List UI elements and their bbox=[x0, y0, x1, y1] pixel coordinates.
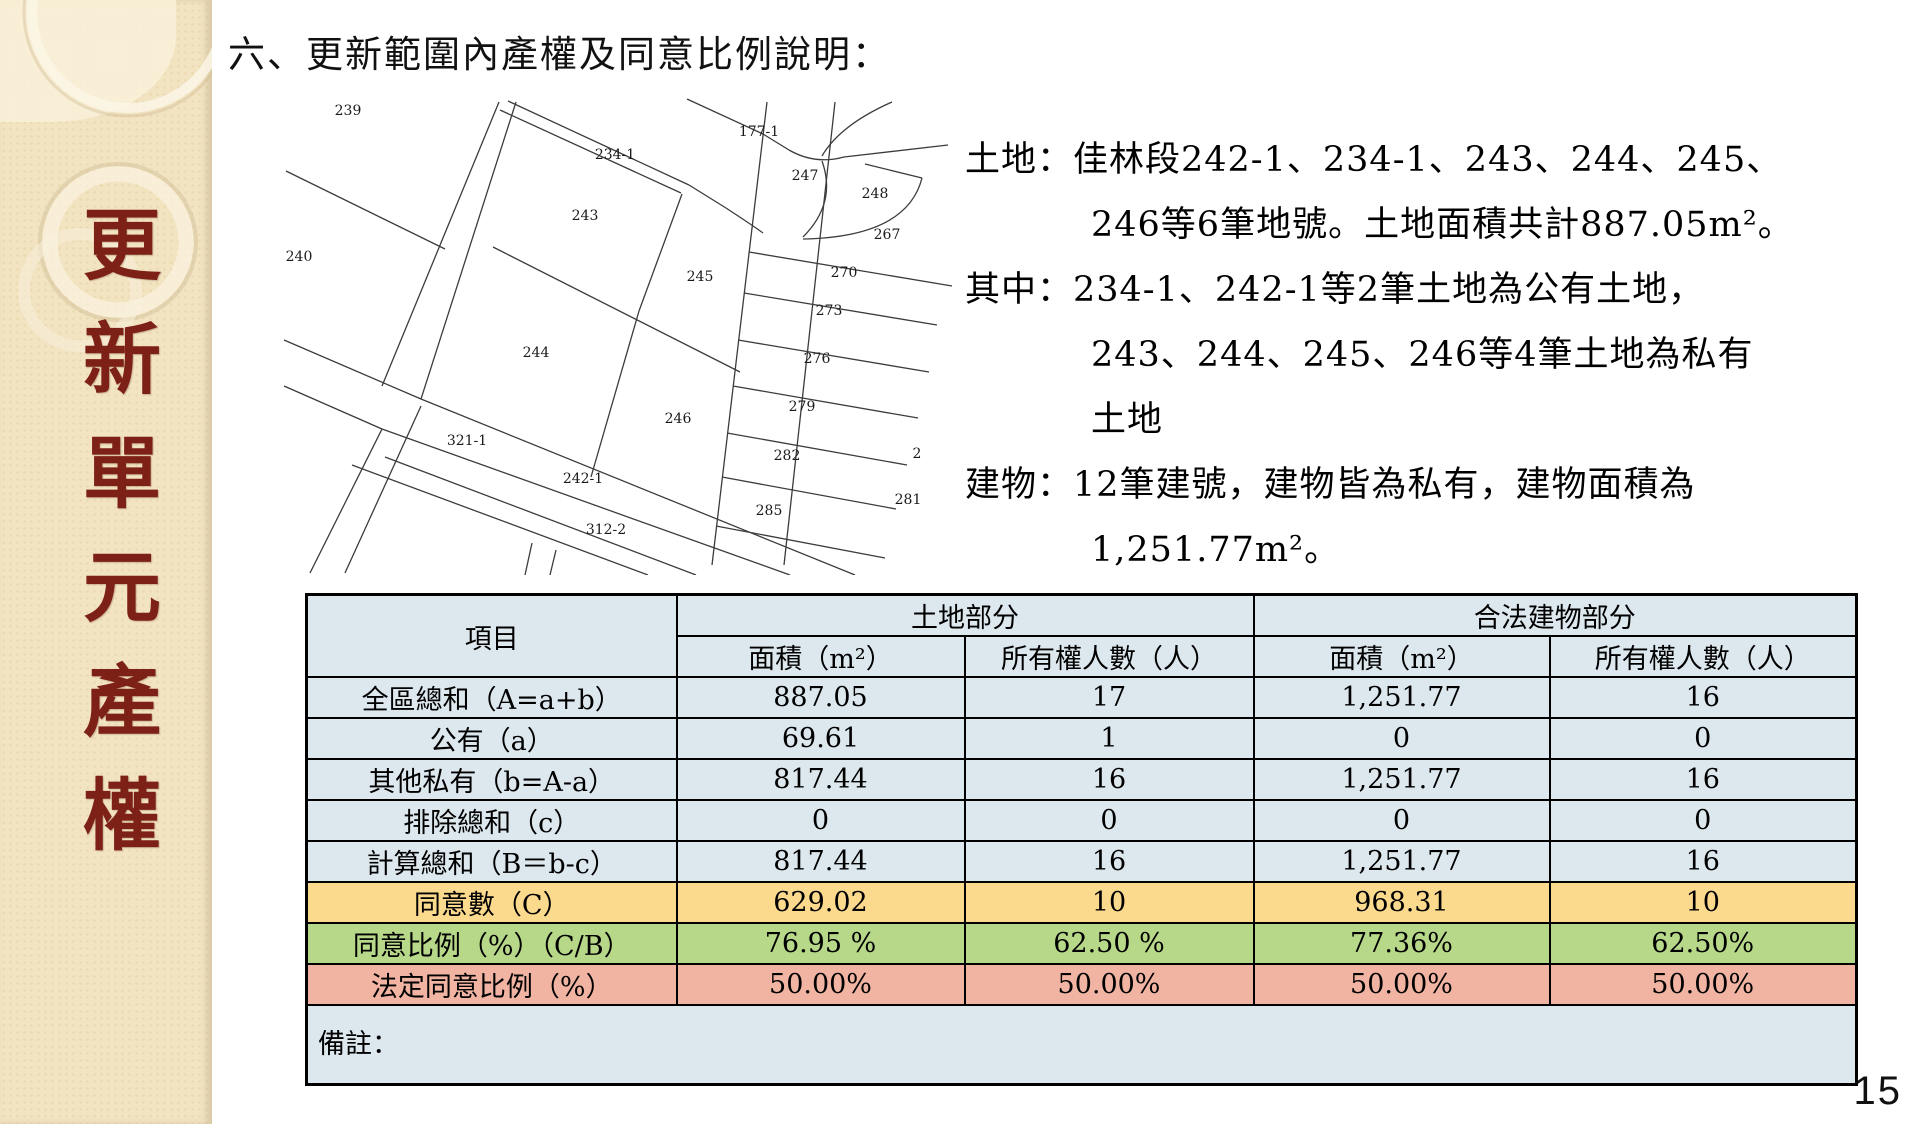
row-label: 同意比例（%）（C/B） bbox=[307, 923, 677, 964]
table-cell: 0 bbox=[1550, 800, 1857, 841]
row-label: 公有（a） bbox=[307, 718, 677, 759]
parcel-label: 234-1 bbox=[595, 147, 635, 163]
parcel-label: 282 bbox=[774, 448, 801, 464]
map-lines bbox=[284, 99, 952, 575]
parcel-label: 279 bbox=[789, 399, 816, 415]
table-cell: 887.05 bbox=[677, 677, 965, 718]
table-cell: 817.44 bbox=[677, 841, 965, 882]
parcel-label: 243 bbox=[572, 208, 599, 224]
table-row: 同意數（C）629.0210968.3110 bbox=[307, 882, 1857, 923]
table-row: 全區總和（A=a+b）887.05171,251.7716 bbox=[307, 677, 1857, 718]
table-cell: 50.00% bbox=[965, 964, 1254, 1005]
note-row: 備註： bbox=[307, 1005, 1857, 1084]
row-label: 全區總和（A=a+b） bbox=[307, 677, 677, 718]
table-cell: 16 bbox=[965, 841, 1254, 882]
table-row: 其他私有（b=A-a）817.44161,251.7716 bbox=[307, 759, 1857, 800]
row-label: 排除總和（c） bbox=[307, 800, 677, 841]
table-cell: 16 bbox=[1550, 841, 1857, 882]
table-cell: 0 bbox=[1550, 718, 1857, 759]
row-label: 其他私有（b=A-a） bbox=[307, 759, 677, 800]
table-cell: 0 bbox=[965, 800, 1254, 841]
parcel-label: 248 bbox=[862, 186, 889, 202]
table-cell: 69.61 bbox=[677, 718, 965, 759]
table-cell: 50.00% bbox=[1254, 964, 1550, 1005]
description-line: 243、244、245、246等4筆土地為私有 bbox=[965, 323, 1915, 388]
parcel-label: 242-1 bbox=[563, 471, 603, 487]
header-building-area: 面積（m²） bbox=[1254, 636, 1550, 677]
table-cell: 0 bbox=[1254, 800, 1550, 841]
parcel-label: 240 bbox=[286, 249, 313, 265]
cadastral-map: 239240234-1243177-1247248267270245273276… bbox=[230, 85, 970, 575]
table-cell: 16 bbox=[1550, 677, 1857, 718]
description-line: 建物：12筆建號，建物皆為私有，建物面積為 bbox=[965, 453, 1915, 518]
table-cell: 17 bbox=[965, 677, 1254, 718]
table-row: 公有（a）69.61100 bbox=[307, 718, 1857, 759]
header-land-section: 土地部分 bbox=[677, 595, 1254, 637]
page-title: 六、更新範圍內產權及同意比例說明： bbox=[228, 24, 891, 78]
row-label: 法定同意比例（%） bbox=[307, 964, 677, 1005]
table-cell: 1,251.77 bbox=[1254, 759, 1550, 800]
table-cell: 62.50 % bbox=[965, 923, 1254, 964]
slide: 更新單元產權 六、更新範圍內產權及同意比例說明： bbox=[0, 0, 1920, 1124]
consent-ratio-table: 項目 土地部分 合法建物部分 面積（m²） 所有權人數（人） 面積（m²） 所有… bbox=[305, 593, 1858, 1086]
parcel-label: 321-1 bbox=[447, 433, 487, 449]
table-cell: 62.50% bbox=[1550, 923, 1857, 964]
description-line: 246等6筆地號。土地面積共計887.05m²。 bbox=[965, 193, 1915, 258]
parcel-label: 2 bbox=[913, 446, 922, 462]
table-cell: 0 bbox=[677, 800, 965, 841]
row-label: 同意數（C） bbox=[307, 882, 677, 923]
parcel-label: 312-2 bbox=[586, 522, 626, 538]
header-land-area: 面積（m²） bbox=[677, 636, 965, 677]
description-line: 土地：佳林段242-1、234-1、243、244、245、 bbox=[965, 128, 1915, 193]
property-description: 土地：佳林段242-1、234-1、243、244、245、246等6筆地號。土… bbox=[965, 128, 1915, 583]
parcel-label: 247 bbox=[792, 168, 819, 184]
parcel-label: 273 bbox=[816, 303, 843, 319]
parcel-label: 244 bbox=[523, 345, 550, 361]
header-building-owners: 所有權人數（人） bbox=[1550, 636, 1857, 677]
description-line: 土地 bbox=[965, 388, 1915, 453]
table-cell: 1,251.77 bbox=[1254, 677, 1550, 718]
parcel-label: 281 bbox=[895, 492, 922, 508]
sidebar-vertical-title: 更新單元產權 bbox=[76, 204, 154, 888]
table-cell: 77.36% bbox=[1254, 923, 1550, 964]
parcel-label: 245 bbox=[687, 269, 714, 285]
table-cell: 50.00% bbox=[677, 964, 965, 1005]
header-building-section: 合法建物部分 bbox=[1254, 595, 1857, 637]
header-item: 項目 bbox=[307, 595, 677, 678]
table-row: 同意比例（%）（C/B）76.95 %62.50 %77.36%62.50% bbox=[307, 923, 1857, 964]
sidebar: 更新單元產權 bbox=[0, 0, 212, 1124]
table-cell: 629.02 bbox=[677, 882, 965, 923]
parcel-label: 177-1 bbox=[739, 124, 779, 140]
table-cell: 16 bbox=[965, 759, 1254, 800]
header-land-owners: 所有權人數（人） bbox=[965, 636, 1254, 677]
table-cell: 1,251.77 bbox=[1254, 841, 1550, 882]
table-row: 排除總和（c）0000 bbox=[307, 800, 1857, 841]
table-cell: 50.00% bbox=[1550, 964, 1857, 1005]
table-cell: 968.31 bbox=[1254, 882, 1550, 923]
description-line: 1,251.77m²。 bbox=[965, 518, 1915, 583]
table-cell: 10 bbox=[965, 882, 1254, 923]
table-cell: 16 bbox=[1550, 759, 1857, 800]
table-row: 計算總和（B＝b-c）817.44161,251.7716 bbox=[307, 841, 1857, 882]
table-cell: 76.95 % bbox=[677, 923, 965, 964]
parcel-label: 276 bbox=[804, 351, 831, 367]
parcel-label: 267 bbox=[874, 227, 901, 243]
parcel-label: 246 bbox=[665, 411, 692, 427]
table-cell: 10 bbox=[1550, 882, 1857, 923]
row-label: 計算總和（B＝b-c） bbox=[307, 841, 677, 882]
table-cell: 817.44 bbox=[677, 759, 965, 800]
parcel-label: 270 bbox=[831, 265, 858, 281]
table-cell: 1 bbox=[965, 718, 1254, 759]
table-cell: 0 bbox=[1254, 718, 1550, 759]
page-number: 15 bbox=[1854, 1069, 1903, 1114]
table-row: 法定同意比例（%）50.00%50.00%50.00%50.00% bbox=[307, 964, 1857, 1005]
cadastral-map-svg: 239240234-1243177-1247248267270245273276… bbox=[230, 85, 970, 575]
parcel-label: 285 bbox=[756, 503, 783, 519]
parcel-label: 239 bbox=[335, 103, 362, 119]
description-line: 其中：234-1、242-1等2筆土地為公有土地， bbox=[965, 258, 1915, 323]
